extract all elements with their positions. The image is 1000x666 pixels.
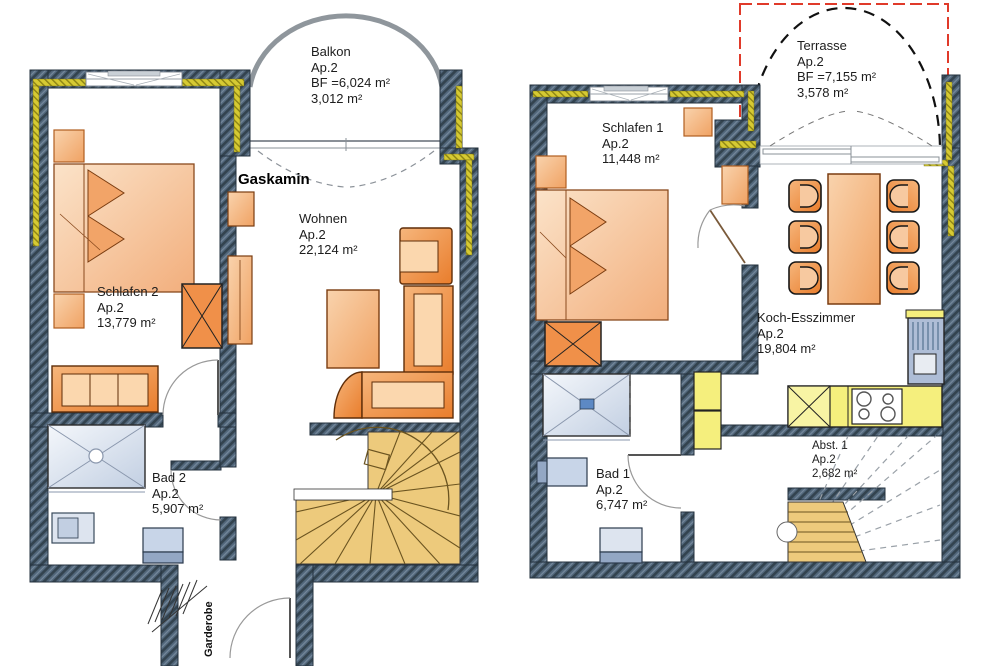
room-area: 3,578 m²	[797, 85, 876, 101]
room-label-schlafen1: Schlafen 1 Ap.2 11,448 m²	[602, 120, 663, 167]
room-ap: Ap.2	[97, 300, 158, 316]
door-schlafen1	[698, 205, 745, 263]
right-plan	[530, 4, 960, 578]
room-area: 13,779 m²	[97, 315, 158, 331]
room-label-koch-esszimmer: Koch-Esszimmer Ap.2 19,804 m²	[757, 310, 855, 357]
tall-cabinet-icon	[694, 411, 721, 449]
toilet-bad1	[600, 528, 642, 563]
room-area: 6,747 m²	[596, 497, 647, 513]
entry-door	[230, 598, 290, 658]
coffee-table-icon	[327, 290, 379, 368]
sink-bad2	[143, 528, 183, 563]
counter-top	[906, 310, 944, 318]
label-garderobe: Garderobe	[203, 601, 216, 657]
room-label-bad2: Bad 2 Ap.2 5,907 m²	[152, 470, 203, 517]
room-name: Bad 2	[152, 470, 203, 486]
room-area: 3,012 m²	[311, 91, 390, 107]
nightstand-icon	[536, 156, 566, 188]
tall-cabinet-icon	[694, 372, 721, 410]
nightstand-icon	[54, 294, 84, 328]
fridge-icon	[908, 318, 944, 384]
window-schlafen2	[86, 71, 182, 86]
room-ap: Ap.2	[311, 60, 390, 76]
room-name: Bad 1	[596, 466, 647, 482]
room-bf: BF =6,024 m²	[311, 75, 390, 91]
room-bf: BF =7,155 m²	[797, 69, 876, 85]
stairs-left	[294, 427, 460, 564]
room-name: Wohnen	[299, 211, 358, 227]
room-label-abst1: Abst. 1 Ap.2 2,682 m²	[812, 439, 857, 481]
nightstand-icon	[54, 130, 84, 162]
sofa-schlafen2	[52, 366, 158, 412]
left-plan	[30, 16, 478, 666]
floorplan-page: Balkon Ap.2 BF =6,024 m² 3,012 m² Gaskam…	[0, 0, 1000, 666]
window-schlafen1	[590, 86, 668, 101]
stove-icon	[852, 389, 902, 424]
fireplace-icon	[228, 192, 254, 226]
shower-bad2	[48, 425, 145, 492]
room-ap: Ap.2	[797, 54, 876, 70]
room-ap: Ap.2	[812, 453, 857, 467]
dining-table-icon	[828, 174, 880, 304]
sink-bad1	[537, 458, 587, 486]
stairs-right	[777, 502, 866, 562]
room-ap: Ap.2	[596, 482, 647, 498]
room-area: 19,804 m²	[757, 341, 855, 357]
bed-schlafen1	[536, 156, 668, 320]
room-name: Schlafen 1	[602, 120, 663, 136]
room-label-bad1: Bad 1 Ap.2 6,747 m²	[596, 466, 647, 513]
cabinet-icon	[722, 166, 748, 204]
shower-bad1	[543, 374, 630, 440]
room-name: Abst. 1	[812, 439, 857, 453]
kitchen-sink-icon	[788, 386, 830, 427]
door-schlafen2	[163, 360, 218, 415]
room-ap: Ap.2	[757, 326, 855, 342]
label-gaskamin: Gaskamin	[238, 171, 310, 188]
sideboard-icon	[228, 256, 252, 344]
room-label-wohnen: Wohnen Ap.2 22,124 m²	[299, 211, 358, 258]
room-label-terrasse: Terrasse Ap.2 BF =7,155 m² 3,578 m²	[797, 38, 876, 100]
room-ap: Ap.2	[299, 227, 358, 243]
room-area: 2,682 m²	[812, 467, 857, 481]
dining-set	[789, 174, 919, 304]
room-name: Schlafen 2	[97, 284, 158, 300]
room-ap: Ap.2	[602, 136, 663, 152]
room-name: Koch-Esszimmer	[757, 310, 855, 326]
room-name: Terrasse	[797, 38, 876, 54]
room-area: 5,907 m²	[152, 501, 203, 517]
room-label-schlafen2: Schlafen 2 Ap.2 13,779 m²	[97, 284, 158, 331]
room-name: Balkon	[311, 44, 390, 60]
toilet-bad2	[52, 513, 94, 543]
room-label-balkon: Balkon Ap.2 BF =6,024 m² 3,012 m²	[311, 44, 390, 106]
armchair-icon	[400, 228, 452, 284]
room-area: 11,448 m²	[602, 151, 663, 167]
room-ap: Ap.2	[152, 486, 203, 502]
room-area: 22,124 m²	[299, 242, 358, 258]
cabinet-icon	[684, 108, 712, 136]
